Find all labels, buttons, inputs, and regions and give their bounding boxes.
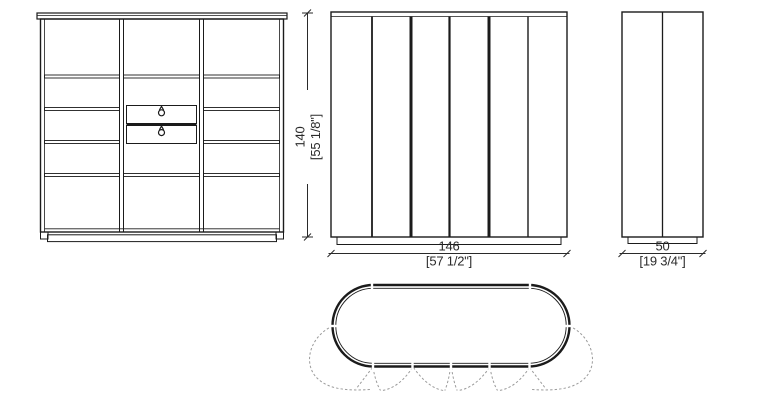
open-door-line [490, 368, 498, 391]
drawer-knob-icon [159, 126, 165, 136]
stadium-outline [333, 285, 570, 367]
foot-left [41, 232, 49, 239]
shelves-right-column [204, 75, 280, 177]
width-imperial-label: [57 1/2"] [426, 254, 472, 269]
door-swing-arc [499, 368, 530, 391]
door-swing-arc [459, 368, 490, 391]
open-door-line [452, 368, 458, 391]
front-closed-view [331, 12, 567, 245]
open-door-line [530, 368, 547, 390]
depth-imperial-label: [19 3/4"] [639, 254, 685, 269]
door-swing-arc [414, 368, 444, 391]
foot-right [276, 232, 284, 239]
depth-metric-label: 50 [655, 239, 669, 254]
door-swing-arc [382, 368, 413, 391]
plinth [41, 232, 284, 242]
drawer-front [127, 126, 197, 144]
shelves-left-column [45, 75, 120, 177]
plan-outer-line [333, 285, 570, 367]
open-door-line [445, 368, 451, 391]
front-open-view [37, 13, 287, 242]
furniture-dimension-drawing: 140 [55 1/8"] 146 [57 1/2"] 50 [19 3/4"] [0, 0, 780, 407]
height-imperial-label: [55 1/8"] [308, 114, 323, 160]
technical-drawing-canvas: 140 [55 1/8"] 146 [57 1/2"] 50 [19 3/4"] [0, 0, 780, 407]
door-panel-dividers [372, 17, 528, 238]
open-door-line [356, 368, 373, 390]
plan-view [310, 282, 593, 391]
drawer-knob-icon [159, 106, 165, 116]
height-metric-label: 140 [293, 126, 308, 147]
drawer-front [127, 106, 197, 124]
plinth-board [48, 235, 277, 242]
top-panel [37, 13, 287, 19]
drawer-unit [127, 106, 197, 144]
side-view [622, 12, 703, 244]
open-door-line [373, 368, 381, 391]
width-metric-label: 146 [438, 239, 459, 254]
